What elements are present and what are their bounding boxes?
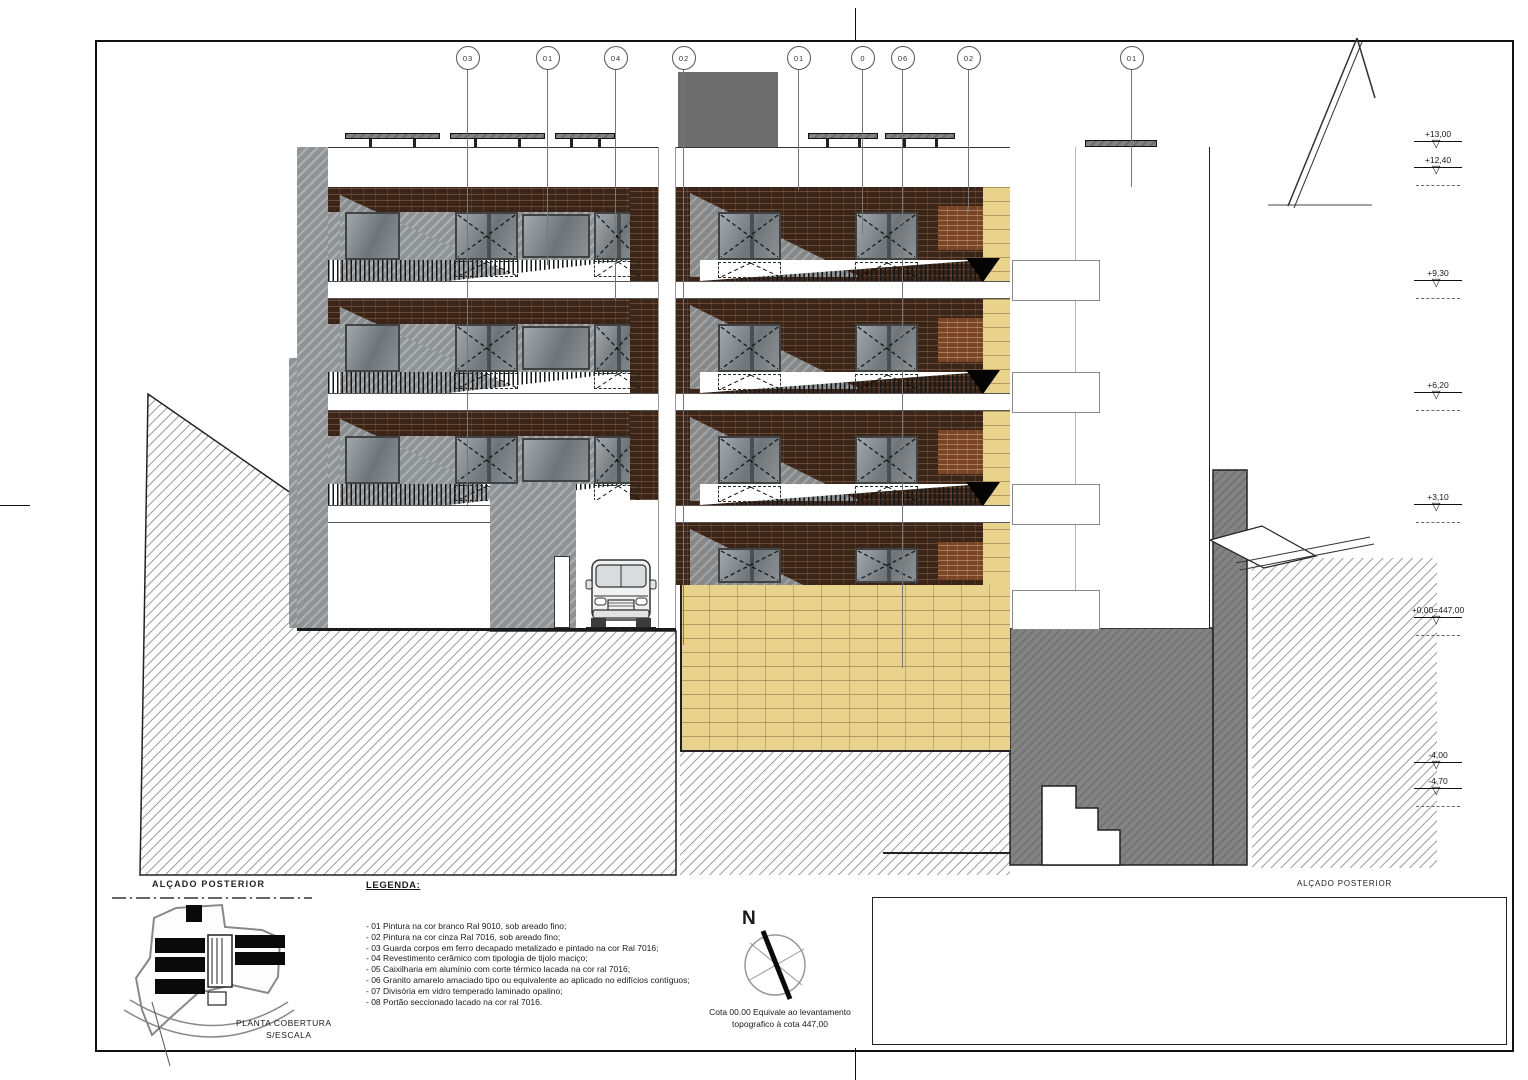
solar-panel-foot [474, 139, 477, 147]
solar-panel [808, 133, 878, 147]
roof-plan-sketch [118, 898, 318, 1068]
window [345, 436, 400, 484]
car [584, 552, 658, 630]
window-opening-mark [857, 326, 916, 370]
legend-item: - 07 Divisória em vidro temperado lamina… [366, 986, 716, 997]
granite-pier [983, 523, 1010, 585]
elevation-title-left: ALÇADO POSTERIOR [152, 879, 265, 889]
window-opening-mark [457, 214, 516, 258]
balcony-slab-box [1012, 590, 1100, 630]
window [718, 436, 781, 484]
expansion-joint [658, 147, 676, 628]
callout-leader [467, 68, 468, 505]
door-swing-mark [594, 485, 640, 501]
balcony-slab-box [1012, 260, 1100, 301]
window [345, 324, 400, 372]
window-opening-mark [857, 550, 916, 581]
balcony-slab-box [1012, 372, 1100, 413]
level-triangle-icon: ▽ [1432, 390, 1444, 400]
brick-patch [938, 206, 983, 250]
window-opening-mark [457, 438, 516, 482]
solar-panel-foot [935, 139, 938, 147]
callout-bubble: 03 [456, 46, 480, 70]
left-pilaster [297, 147, 328, 628]
callout-bubble: 06 [891, 46, 915, 70]
legend-title: LEGENDA: [366, 880, 716, 891]
title-block [872, 897, 1507, 1045]
shadow-v [966, 482, 1000, 506]
legend-item: - 08 Portão seccionado lacado na cor ral… [366, 997, 716, 1008]
window [455, 324, 518, 372]
solar-panel-top [555, 133, 615, 139]
callout-number: 02 [964, 54, 974, 63]
ground-room [330, 523, 490, 628]
window [522, 214, 590, 258]
door-swing-mark [855, 262, 918, 278]
callout-leader [1131, 68, 1132, 187]
callout-number: 01 [543, 54, 553, 63]
callout-number: 03 [463, 54, 473, 63]
callout-bubble: 01 [787, 46, 811, 70]
window [855, 324, 918, 372]
callout-bubble: 04 [604, 46, 628, 70]
legend-item: - 03 Guarda corpos em ferro decapado met… [366, 943, 716, 954]
callout-leader [547, 68, 548, 265]
window-opening-mark [720, 326, 779, 370]
ground-floor-line [297, 628, 676, 631]
window-opening-mark [457, 326, 516, 370]
solar-panel-foot [858, 139, 861, 147]
solar-panel-foot [369, 139, 372, 147]
callout-number: 01 [794, 54, 804, 63]
roof-plan-title: PLANTA COBERTURA [236, 1018, 332, 1028]
window-opening-mark [720, 550, 779, 581]
legend-item: - 04 Revestimento cerâmico com tipologia… [366, 953, 716, 964]
door-swing-mark [718, 374, 781, 390]
brick-band [328, 187, 658, 212]
compass-north-label: N [742, 908, 756, 930]
solar-panel [345, 133, 440, 147]
callout-number: 06 [898, 54, 908, 63]
door-swing-mark [855, 374, 918, 390]
balcony-slab-box [1012, 484, 1100, 525]
level-dash-line [1416, 635, 1460, 636]
window [522, 326, 590, 370]
roof-plan-scale: S/ESCALA [266, 1030, 312, 1040]
door-swing-mark [594, 373, 640, 389]
level-triangle-icon: ▽ [1432, 278, 1444, 288]
level-triangle-icon: ▽ [1432, 502, 1444, 512]
callout-number: 02 [679, 54, 689, 63]
level-triangle-icon: ▽ [1432, 786, 1444, 796]
door-swing-mark [718, 486, 781, 502]
callout-leader [798, 68, 799, 190]
window-opening-mark [857, 438, 916, 482]
floor-slab [328, 393, 658, 411]
legend: LEGENDA: - 01 Pintura na cor branco Ral … [366, 880, 716, 1007]
callout-bubble: 0 [851, 46, 875, 70]
door-swing-mark [455, 373, 518, 389]
level-dash-line [1416, 806, 1460, 807]
window [455, 212, 518, 260]
brick-patch [938, 318, 983, 362]
window [718, 212, 781, 260]
window [522, 438, 590, 482]
ground-column [554, 556, 570, 628]
solar-panel-foot [570, 139, 573, 147]
callout-leader [862, 68, 863, 235]
solar-panel-foot [518, 139, 521, 147]
solar-panel-flat [1085, 140, 1157, 147]
floor-slab [676, 393, 1010, 411]
window-opening-mark [720, 214, 779, 258]
floor-slab [328, 281, 658, 299]
callout-number: 01 [1127, 54, 1137, 63]
window [345, 212, 400, 260]
brick-band [328, 299, 658, 324]
solar-panel-top [808, 133, 878, 139]
callout-leader [615, 68, 616, 300]
solar-panel-foot [826, 139, 829, 147]
floor-slab [676, 281, 1010, 299]
level-dash-line [1416, 298, 1460, 299]
legend-item: - 05 Caixilharia em alumínio com corte t… [366, 964, 716, 975]
solar-panel [555, 133, 615, 147]
cota-note-line2: topografico à cota 447,00 [700, 1019, 860, 1029]
window [718, 548, 781, 583]
window-opening-mark [720, 438, 779, 482]
solar-panel-foot [413, 139, 416, 147]
shadow-v [966, 370, 1000, 394]
door-swing-mark [455, 261, 518, 277]
brick-band [328, 411, 658, 436]
level-dash-line [1416, 185, 1460, 186]
level-triangle-icon: ▽ [1432, 165, 1444, 175]
left-pilaster-base [289, 358, 297, 628]
callout-leader [902, 68, 903, 668]
solar-panel-top [345, 133, 440, 139]
solar-panel-top [885, 133, 955, 139]
level-triangle-icon: ▽ [1432, 615, 1444, 625]
solar-panel-foot [598, 139, 601, 147]
level-dash-line [1416, 410, 1460, 411]
legend-item: - 06 Granito amarelo amaciado tipo ou eq… [366, 975, 716, 986]
window [718, 324, 781, 372]
window [455, 436, 518, 484]
brick-patch [938, 542, 983, 580]
callout-bubble: 02 [957, 46, 981, 70]
callout-leader [683, 68, 684, 645]
legend-item: - 02 Pintura na cor cinza Ral 7016, sob … [366, 932, 716, 943]
callout-bubble: 02 [672, 46, 696, 70]
level-dash-line [1416, 522, 1460, 523]
elevation-title-right: ALÇADO POSTERIOR [1297, 879, 1392, 888]
window [855, 212, 918, 260]
level-triangle-icon: ▽ [1432, 760, 1444, 770]
door-swing-mark [855, 486, 918, 502]
solar-panel [885, 133, 955, 147]
door-swing-mark [718, 262, 781, 278]
level-triangle-icon: ▽ [1432, 139, 1444, 149]
callout-bubble: 01 [536, 46, 560, 70]
granite-wall [680, 585, 1010, 752]
floor-slab [676, 505, 1010, 523]
callout-number: 04 [611, 54, 621, 63]
shadow-v [966, 258, 1000, 282]
callout-number: 0 [860, 54, 865, 63]
door-swing-mark [594, 261, 640, 277]
solar-panel [450, 133, 545, 147]
window-opening-mark [857, 214, 916, 258]
solar-panel-top [450, 133, 545, 139]
callout-bubble: 01 [1120, 46, 1144, 70]
window [855, 548, 918, 583]
callout-leader [968, 68, 969, 212]
solar-panel-foot [903, 139, 906, 147]
cota-note-line1: Cota 00.00 Equivale ao levantamento [700, 1007, 860, 1017]
window [855, 436, 918, 484]
brick-patch [938, 430, 983, 474]
legend-item: - 01 Pintura na cor branco Ral 9010, sob… [366, 921, 716, 932]
drawing-sheet: 03010402010060201 +13,00▽+12,40▽+9,30▽+6… [0, 0, 1528, 1080]
